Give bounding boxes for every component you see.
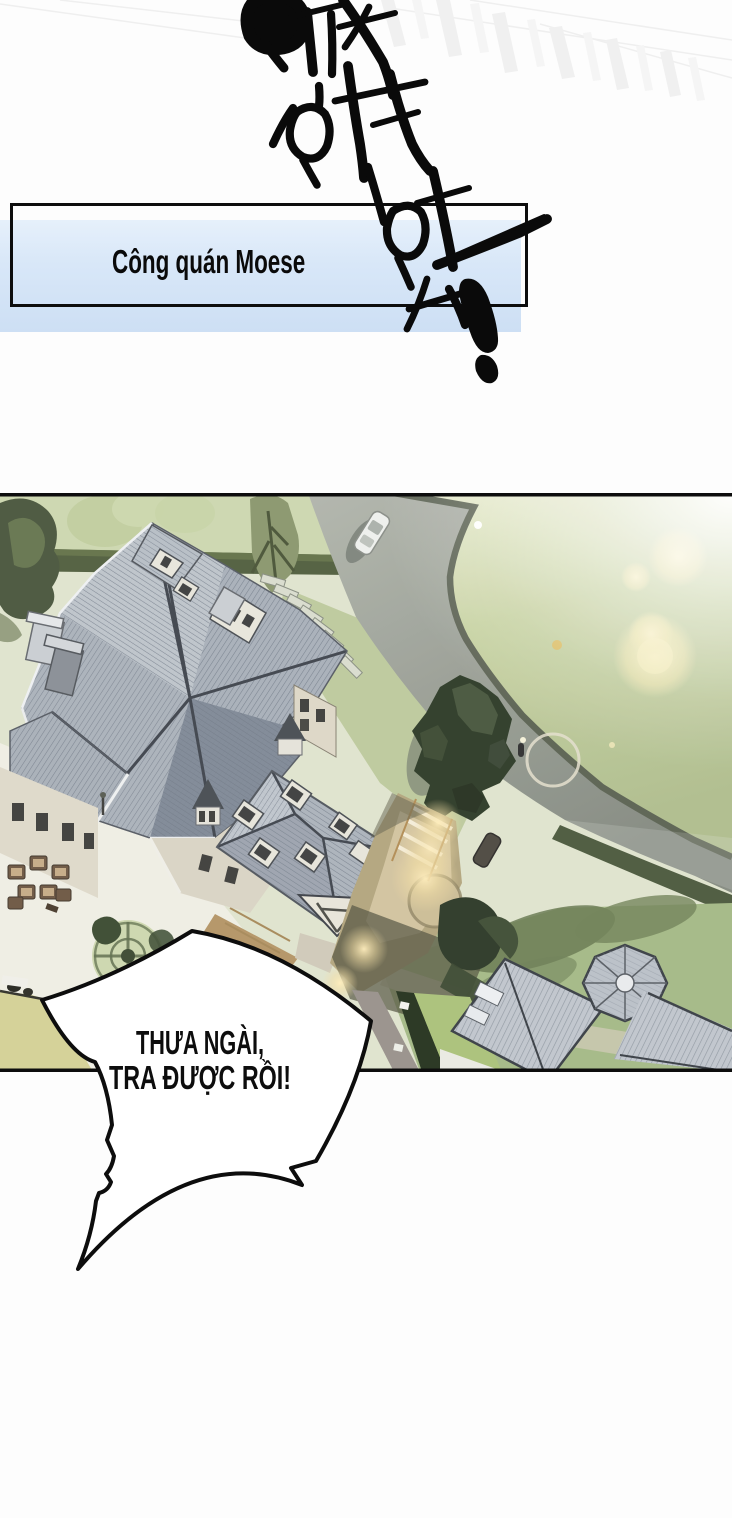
- svg-text:THƯA NGÀI,: THƯA NGÀI,: [136, 1024, 264, 1061]
- svg-text:TRA ĐƯỢC RỒI!: TRA ĐƯỢC RỒI!: [109, 1059, 291, 1096]
